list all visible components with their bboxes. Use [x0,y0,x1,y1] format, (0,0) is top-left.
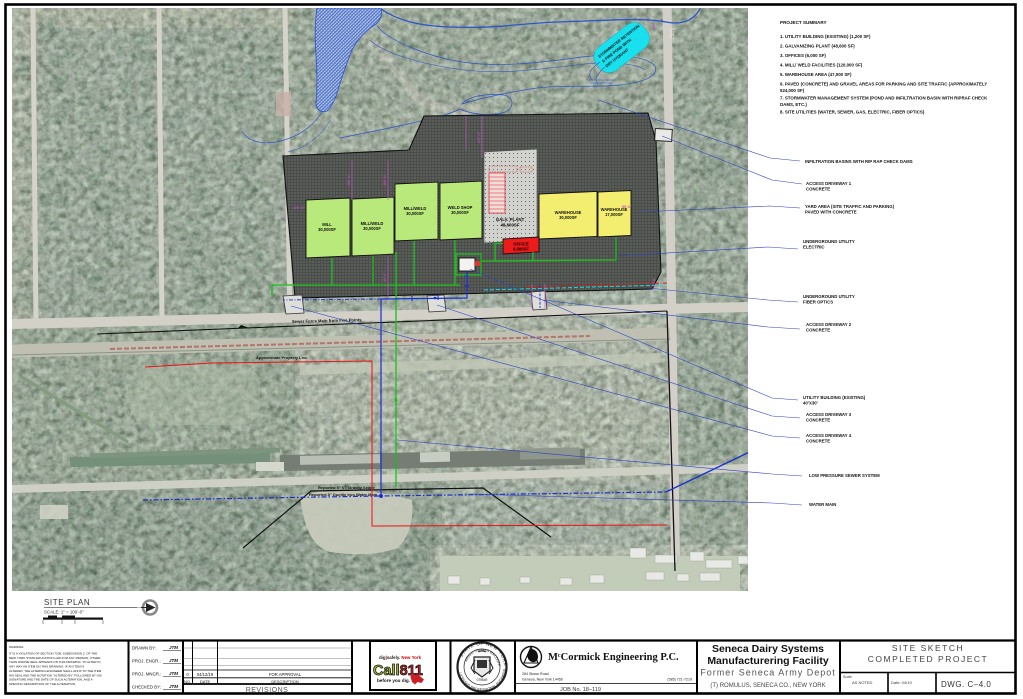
svg-text:30,000SF: 30,000SF [451,210,469,215]
svg-text:079649: 079649 [477,678,488,682]
svg-text:ACCESS DRIVEWAY 3: ACCESS DRIVEWAY 3 [806,412,852,417]
svg-text:Geneva, New York 14456: Geneva, New York 14456 [522,678,563,682]
svg-text:PROJ. MNGR.:: PROJ. MNGR.: [132,672,161,677]
svg-text:CONCRETE: CONCRETE [806,187,830,192]
svg-text:UNDERGROUND UTILITY: UNDERGROUND UTILITY [803,239,855,244]
svg-text:200’: 200’ [652,23,656,30]
svg-text:DRAWN BY:: DRAWN BY: [132,646,156,651]
svg-text:524,000 SF): 524,000 SF) [780,88,805,93]
svg-text:04/12/19: 04/12/19 [197,672,214,677]
svg-text:ACCESS DRIVEWAY 1: ACCESS DRIVEWAY 1 [806,181,852,186]
svg-text:0: 0 [186,672,189,677]
svg-text:FOR APPROVAL: FOR APPROVAL [269,672,302,677]
svg-text:5. WAREHOUSE AREA (47,000 SF: 5. WAREHOUSE AREA (47,000 SF) [780,72,852,77]
svg-text:NO.: NO. [184,679,191,684]
svg-text:1. UTILITY BUILDING (EXISTING: 1. UTILITY BUILDING (EXISTING) (1,200 SF… [780,34,871,39]
svg-text:30’-0”: 30’-0” [383,272,387,282]
svg-text:INFILTRATION BASINS WITH RIP R: INFILTRATION BASINS WITH RIP RAP CHECK D… [805,159,913,164]
svg-text:SPECIFIC DESCRIPTION OF THE AL: SPECIFIC DESCRIPTION OF THE ALTERATION. [9,682,76,686]
svg-text:Reported 9" VT Gravity Sewer: Reported 9" VT Gravity Sewer [318,485,375,490]
svg-text:PROJECT SUMMARY: PROJECT SUMMARY [780,20,827,25]
svg-text:90’-0”: 90’-0” [622,205,632,209]
svg-text:DWG. C–4.0: DWG. C–4.0 [941,680,991,689]
svg-text:(T) ROMULUS, SENECA CO., NEW Y: (T) ROMULUS, SENECA CO., NEW YORK [710,683,825,689]
svg-text:284 Skuse Road: 284 Skuse Road [522,672,549,676]
svg-text:before you dig.: before you dig. [377,678,410,683]
svg-text:PAVED WITH CONCRETE: PAVED WITH CONCRETE [805,210,857,215]
svg-text:4. MILL/ WELD FACILITIES (12: 4. MILL/ WELD FACILITIES (120,000 SF) [780,63,863,68]
svg-text:JTM: JTM [169,671,178,676]
svg-text:3. OFFICES (6,000 SF): 3. OFFICES (6,000 SF) [780,53,826,58]
svg-text:Approximate Property Line: Approximate Property Line [256,355,308,360]
svg-text:350’-0”: 350’-0” [383,174,387,186]
svg-text:Seneca Dairy Systems: Seneca Dairy Systems [712,643,824,655]
svg-text:30,000SF: 30,000SF [363,226,381,231]
svg-text:2. GALVANIZING PLANT (48,600: 2. GALVANIZING PLANT (48,600 SF) [780,44,855,49]
svg-text:DATE: DATE [200,679,211,684]
svg-text:Manufacturering Facility: Manufacturering Facility [707,655,829,667]
svg-text:SCALE: 1" = 100’-0”: SCALE: 1" = 100’-0” [44,610,84,615]
svg-text:SITE PLAN: SITE PLAN [44,598,90,607]
svg-text:FIBER OPTICS: FIBER OPTICS [803,300,833,305]
svg-text:1002: 1002 [668,28,674,39]
svg-text:6,000SF: 6,000SF [513,247,529,252]
svg-text:UTILITY BUILDING (EXISTING): UTILITY BUILDING (EXISTING) [803,395,866,400]
svg-text:40’X30’: 40’X30’ [803,401,818,406]
svg-text:UNDERGROUND UTILITY: UNDERGROUND UTILITY [803,294,855,299]
svg-text:SITE SKETCH: SITE SKETCH [892,643,964,653]
svg-text:JOB No. 18–119: JOB No. 18–119 [560,687,601,693]
svg-text:YARD AREA (SITE TRAFFIC AND PA: YARD AREA (SITE TRAFFIC AND PARKING) [805,204,895,209]
svg-text:WATER MAIN: WATER MAIN [809,502,836,507]
svg-text:GALV. PLANT: GALV. PLANT [496,217,525,222]
svg-text:Former Seneca Army Depot: Former Seneca Army Depot [700,668,836,678]
svg-text:30,000SF: 30,000SF [559,215,577,220]
svg-text:WARNING:: WARNING: [9,645,24,649]
svg-text:17,000SF: 17,000SF [605,212,623,217]
svg-text:JTM: JTM [169,658,178,663]
svg-text:30,000SF: 30,000SF [406,211,424,216]
svg-text:48,600SF: 48,600SF [500,223,519,228]
svg-text:CONCRETE: CONCRETE [806,418,830,423]
svg-text:MᶜCormick Engineering P.C.: MᶜCormick Engineering P.C. [548,652,679,663]
svg-text:(585) 721-7219: (585) 721-7219 [667,678,692,682]
svg-text:CHECKED BY:: CHECKED BY: [132,685,161,690]
svg-text:ACCESS DRIVEWAY 2: ACCESS DRIVEWAY 2 [806,322,852,327]
svg-text:LOW PRESSURE SEWER SYSTEM: LOW PRESSURE SEWER SYSTEM [809,473,880,478]
svg-text:DAMS, ETC.): DAMS, ETC.) [780,102,807,107]
svg-text:7. STORMWATER MANAGEMENT SYST: 7. STORMWATER MANAGEMENT SYSTEM (POND AN… [780,96,988,101]
svg-text:Date: 04/19: Date: 04/19 [891,680,912,685]
svg-text:AS NOTED: AS NOTED [852,680,873,685]
svg-text:JTM: JTM [169,645,178,650]
svg-text:8. SITE UTILITIES (WATER, SEW: 8. SITE UTILITIES (WATER, SEWER, GAS, EL… [780,110,925,115]
svg-text:DESCRIPTION: DESCRIPTION [271,679,298,684]
svg-text:Scale:: Scale: [843,675,852,679]
svg-text:200’-0”: 200’-0” [477,131,481,143]
svg-text:JTM: JTM [169,684,178,689]
svg-text:CONCRETE: CONCRETE [806,439,830,444]
svg-text:350’-0”: 350’-0” [347,174,351,186]
svg-text:30,000SF: 30,000SF [318,227,336,232]
svg-text:6. PAVED (CONCRETE) AND GRAVE: 6. PAVED (CONCRETE) AND GRAVEL AREAS FOR… [780,82,987,87]
svg-text:COMPLETED PROJECT: COMPLETED PROJECT [868,654,988,664]
svg-text:100’-0”: 100’-0” [293,206,305,210]
svg-text:PROJ. ENGR.:: PROJ. ENGR.: [132,659,161,664]
svg-text:dig|safely. New York: dig|safely. New York [379,655,422,660]
svg-text:ACCESS DRIVEWAY 4: ACCESS DRIVEWAY 4 [806,433,852,438]
svg-text:CONCRETE: CONCRETE [806,328,830,333]
svg-text:ELECTRIC: ELECTRIC [803,245,825,250]
